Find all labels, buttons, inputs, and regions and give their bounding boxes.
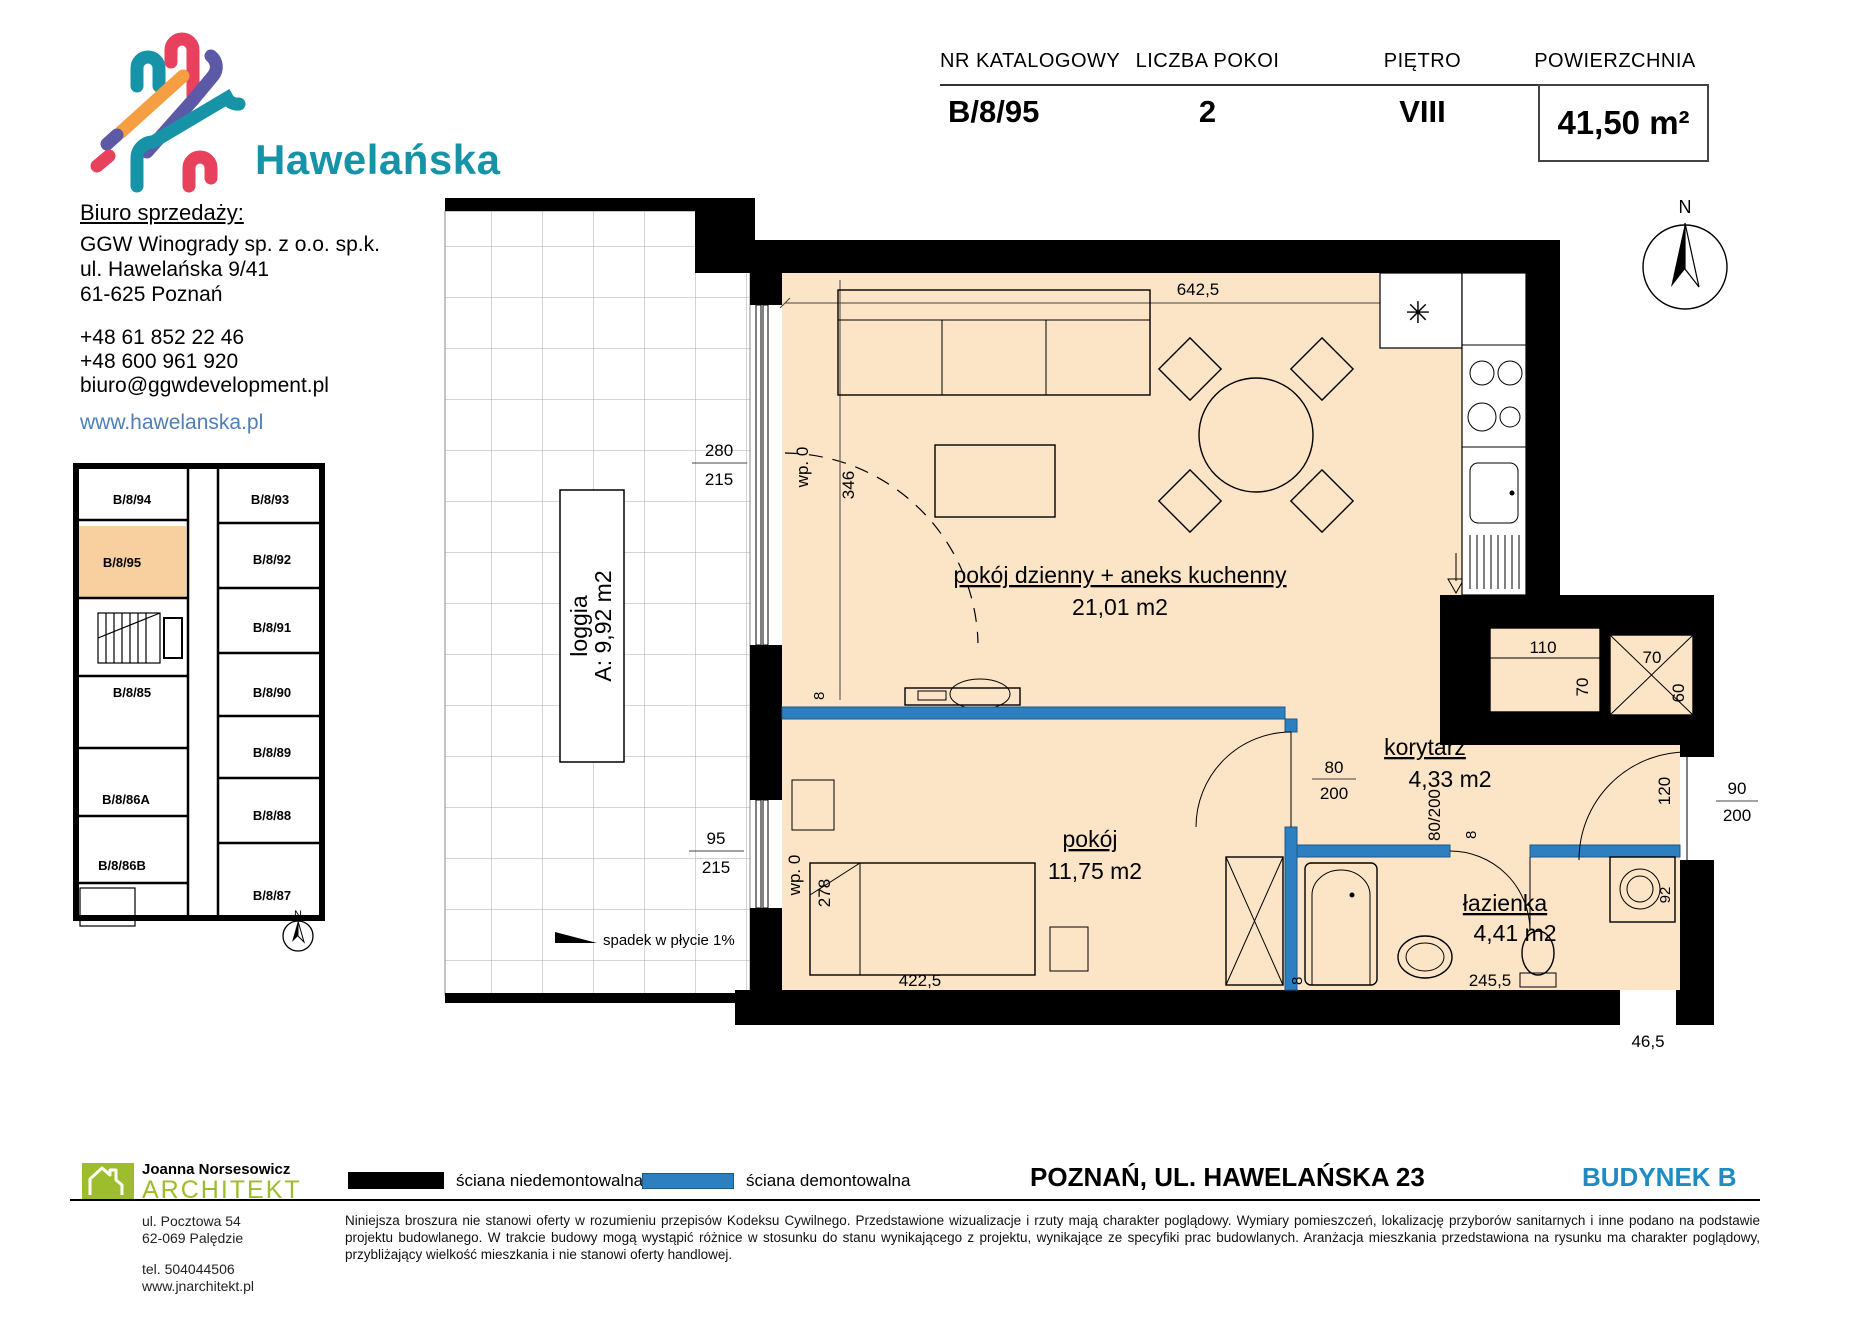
mini-unit-label-highlighted: B/8/95 (103, 555, 141, 570)
boiler-symbol: ✳ (1405, 297, 1430, 330)
mini-unit-label: B/8/93 (251, 492, 289, 507)
legend-fixed-wall-swatch (348, 1172, 444, 1189)
svg-text:200: 200 (1320, 784, 1348, 803)
bath-name: łazienka (1463, 890, 1548, 916)
dim-living-width: 642,5 (1177, 280, 1220, 299)
mini-unit-label: B/8/90 (253, 685, 291, 700)
dim-window1-w: 280 (705, 441, 733, 460)
header-col-label-catalog: NR KATALOGOWY (940, 50, 1115, 73)
svg-text:200: 200 (1723, 806, 1751, 825)
slope-note: spadek w płycie 1% (603, 932, 735, 949)
footer-address: POZNAŃ, UL. HAWELAŃSKA 23 (1030, 1162, 1425, 1193)
dim-shaft2-width: 70 (1643, 648, 1662, 667)
brochure-page: Hawelańska Biuro sprzedaży: GGW Winograd… (0, 0, 1871, 1323)
corridor-area: 4,33 m2 (1408, 766, 1491, 792)
floor-plan: loggia A: 9,92 m2 spadek w płycie 1% (440, 195, 1760, 1060)
bedroom-name: pokój (1063, 826, 1118, 852)
mini-unit-label: B/8/88 (253, 808, 291, 823)
sales-address-line2: 61-625 Poznań (80, 282, 222, 308)
sales-phone-1: +48 61 852 22 46 (80, 325, 244, 351)
architect-phone: tel. 504044506 (142, 1260, 235, 1278)
living-room-name: pokój dzienny + aneks kuchenny (953, 562, 1287, 588)
loggia-area: A: 9,92 m2 (590, 570, 616, 681)
sales-office-heading: Biuro sprzedaży: (80, 200, 244, 226)
dim-wall-8b: 8 (1463, 831, 1480, 839)
mini-unit-label: B/8/86B (98, 858, 146, 873)
architect-address-1: ul. Pocztowa 54 (142, 1212, 241, 1230)
sales-phone-2: +48 600 961 920 (80, 349, 238, 375)
mini-unit-label: B/8/86A (102, 792, 150, 807)
legend-removable-wall-swatch (642, 1173, 734, 1189)
svg-text:90: 90 (1728, 779, 1747, 798)
mini-unit-label: B/8/92 (253, 552, 291, 567)
mini-unit-label: B/8/94 (113, 492, 152, 507)
mini-unit-label: B/8/89 (253, 745, 291, 760)
dim-kitchen-272: 272 (1529, 411, 1548, 439)
brand-logo (85, 28, 265, 203)
dim-shaft2-depth: 60 (1669, 684, 1688, 703)
dim-bed-width: 422,5 (899, 971, 942, 990)
dim-bath-door: 80/200 (1425, 789, 1444, 841)
sales-email[interactable]: biuro@ggwdevelopment.pl (80, 373, 329, 399)
unit-catalog-number: B/8/95 (948, 94, 1039, 130)
unit-floor: VIII (1355, 94, 1490, 130)
architect-logo (82, 1163, 134, 1204)
loggia: loggia A: 9,92 m2 spadek w płycie 1% (445, 198, 750, 1003)
architect-house-icon (82, 1163, 134, 1199)
dim-wp0-top: wp. 0 (793, 447, 812, 489)
mini-unit-label: B/8/87 (253, 888, 291, 903)
sales-company: GGW Winogrady sp. z o.o. sp.k. (80, 232, 380, 258)
hawelanska-logo-icon (85, 28, 265, 203)
dim-bath-width: 245,5 (1469, 971, 1512, 990)
dim-notch: 46,5 (1631, 1032, 1664, 1051)
dim-8-bottom: 8 (1289, 977, 1306, 985)
mini-unit-label: B/8/85 (113, 685, 151, 700)
living-room-area: 21,01 m2 (1072, 594, 1168, 620)
sales-address-line1: ul. Hawelańska 9/41 (80, 257, 269, 283)
building-overview-plan: B/8/94 B/8/93 B/8/95 B/8/92 B/8/91 B/8/8… (70, 448, 335, 963)
dim-278: 278 (815, 879, 834, 907)
header-col-label-floor: PIĘTRO (1355, 50, 1490, 73)
bedroom-area: 11,75 m2 (1048, 858, 1142, 884)
dim-wall-8a: 8 (811, 692, 828, 700)
dim-wp0-bottom: wp. 0 (785, 855, 804, 897)
footer-rule (70, 1199, 1760, 1201)
dim-120: 120 (1655, 777, 1674, 805)
architect-title: ARCHITEKT (142, 1176, 302, 1205)
architect-website[interactable]: www.jnarchitekt.pl (142, 1277, 254, 1295)
header-rule (940, 84, 1538, 86)
compass-icon: N (1643, 197, 1727, 309)
architect-address-2: 62-069 Palędzie (142, 1229, 243, 1247)
dim-washer-92: 92 (1657, 887, 1674, 904)
svg-text:N: N (1679, 197, 1692, 217)
sales-website-link[interactable]: www.hawelanska.pl (80, 410, 263, 436)
loggia-name: loggia (566, 595, 592, 657)
header-col-label-rooms: LICZBA POKOI (1125, 50, 1290, 73)
mini-unit-label: B/8/91 (253, 620, 291, 635)
disclaimer-text: Niniejsza broszura nie stanowi oferty w … (345, 1212, 1760, 1263)
corridor-name: korytarz (1384, 734, 1466, 760)
legend-fixed-wall-label: ściana niedemontowalna (456, 1171, 643, 1191)
dim-window2-h: 215 (702, 858, 730, 877)
unit-room-count: 2 (1125, 94, 1290, 130)
dim-corner-70: 70 (1683, 996, 1700, 1013)
mini-stair-core (98, 613, 182, 663)
unit-area-badge: 41,50 m² (1538, 84, 1709, 162)
header-col-label-area: POWIERZCHNIA (1525, 50, 1705, 73)
svg-text:N: N (294, 909, 302, 921)
footer-building: BUDYNEK B (1582, 1162, 1737, 1193)
dim-window2-w: 95 (707, 829, 726, 848)
dim-346: 346 (839, 471, 858, 499)
dim-shaft1-depth: 70 (1573, 678, 1592, 697)
dim-shaft1-width: 110 (1529, 638, 1556, 657)
svg-text:80: 80 (1325, 758, 1344, 777)
dim-window1-h: 215 (705, 470, 733, 489)
brand-name: Hawelańska (255, 136, 500, 184)
legend-removable-wall-label: ściana demontowalna (746, 1171, 910, 1191)
